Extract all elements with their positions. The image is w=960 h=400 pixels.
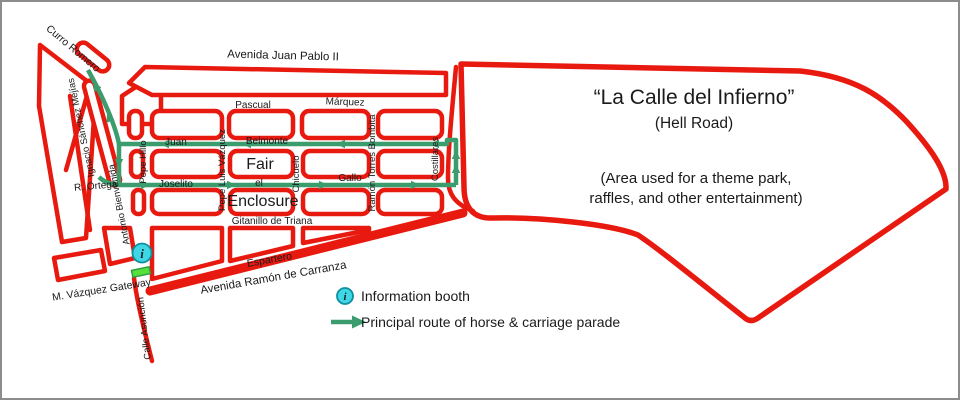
route-arrow	[452, 164, 460, 173]
city-block	[133, 190, 144, 214]
city-block	[152, 111, 222, 138]
street-label-ramon-torres-bombita: Ramón Torres Bombita	[367, 114, 378, 212]
city-block	[303, 190, 369, 214]
juan-pablo-band-block	[129, 67, 446, 95]
route-arrow	[227, 181, 236, 189]
street-label-pascual: Pascual	[235, 100, 271, 111]
city-block	[302, 111, 369, 138]
street-label-belmonte: Belmonte	[246, 136, 289, 147]
legend-info-label: Information booth	[361, 288, 470, 304]
fairground-map: i Curro Romero Ignacio Sánchez Mejías Av…	[2, 2, 958, 398]
street-label-juan: Juan	[165, 137, 187, 148]
legend-info-icon: i	[337, 288, 353, 304]
fair-enclosure-label-line3: Enclosure	[227, 193, 298, 210]
street-label-chicuelo: Chicuelo	[291, 156, 302, 193]
infierno-subtitle: (Hell Road)	[655, 115, 733, 132]
street-label-avenida-juan-pablo: Avenida Juan Pablo II	[227, 49, 339, 64]
street-label-joselito: Joselito	[159, 179, 193, 190]
fair-enclosure-label-line2: el	[255, 178, 263, 189]
city-block	[378, 111, 442, 138]
fair-enclosure-label-line1: Fair	[246, 156, 274, 173]
map-frame: i Curro Romero Ignacio Sánchez Mejías Av…	[0, 0, 960, 400]
info-booth-symbol: i	[140, 246, 144, 261]
street-label-pepe-hillo: Pepe Hillo	[138, 140, 149, 183]
city-block	[54, 250, 105, 280]
street-label-gitanillo: Gitanillo de Triana	[232, 216, 313, 227]
street-network	[39, 40, 946, 361]
city-block	[229, 111, 293, 138]
info-booth-marker: i	[133, 244, 152, 263]
infierno-description-line2: raffles, and other entertainment)	[589, 190, 802, 207]
city-block	[152, 190, 222, 214]
legend: i Information booth Principal route of h…	[331, 288, 620, 330]
street-label-marquez: Márquez	[325, 96, 364, 108]
infierno-title: “La Calle del Infierno”	[594, 86, 795, 109]
infierno-text: “La Calle del Infierno” (Hell Road) (Are…	[589, 86, 802, 207]
infierno-description-line1: (Area used for a theme park,	[601, 170, 792, 187]
street-label-costillares: Costillares	[430, 137, 441, 182]
street-label-calle-asuncion: Calle Asunción	[135, 296, 154, 360]
route-arrow	[452, 150, 460, 159]
city-block	[378, 190, 442, 214]
street-label-pepe-luis-vazquez: Pepe Luis Vázquez	[217, 129, 228, 211]
route-arrow	[336, 140, 345, 148]
legend-route-label: Principal route of horse & carriage para…	[361, 314, 620, 330]
street-label-gallo: Gallo	[338, 173, 362, 184]
city-block	[129, 111, 142, 138]
city-block	[152, 151, 222, 177]
